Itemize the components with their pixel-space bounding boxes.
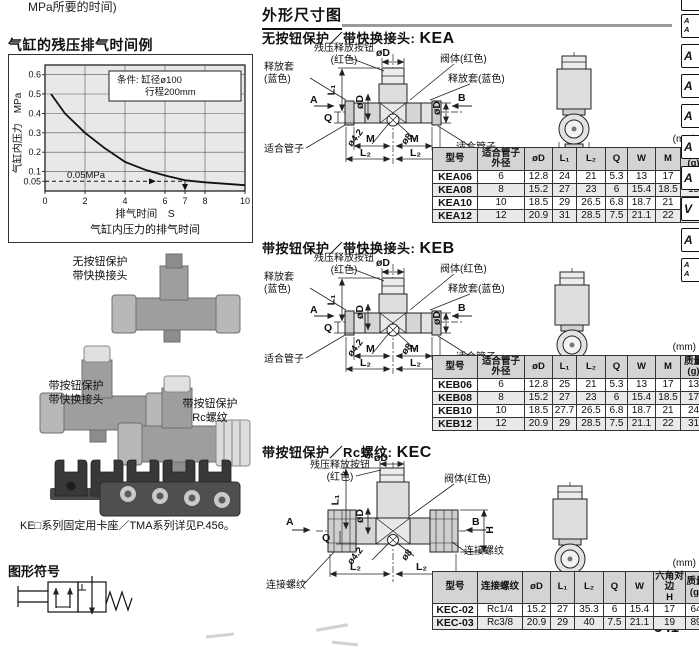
- table-row: KEB08815.22723615.418.517: [433, 392, 699, 405]
- x-axis-ticks: 0 2 4 6 7 8 10: [42, 196, 250, 206]
- value-cell: 31: [681, 418, 699, 431]
- page-top-note: MPa所要的时间): [28, 0, 117, 15]
- value-cell: Rc1/4: [478, 604, 523, 617]
- svg-text:2: 2: [82, 196, 87, 206]
- svg-text:7: 7: [182, 196, 187, 206]
- model-cell: KEB06: [433, 379, 478, 392]
- dim-label-l2-left: L₂: [360, 357, 371, 369]
- column-header: øD: [525, 148, 553, 171]
- dim-label-od-top: øD: [376, 47, 390, 59]
- value-cell: 28.5: [577, 210, 606, 223]
- value-cell: 29: [553, 197, 577, 210]
- dim-label-l2-left: L₂: [350, 561, 361, 573]
- condition-line2: 行程200mm: [145, 86, 196, 98]
- value-cell: 12.8: [525, 379, 553, 392]
- table-header-row: 型号适合管子 外径øDL₁L₂QWM质量 (g): [433, 148, 699, 171]
- label-release-sleeve-left: 释放套 (蓝色): [264, 62, 294, 86]
- value-cell: 13: [628, 171, 656, 184]
- dim-label-od-right: øD: [431, 311, 443, 325]
- dim-label-b: B: [472, 516, 480, 528]
- table-row: KEA06612.824215.3131710: [433, 171, 699, 184]
- photo-label-kea: 无按钮保护 带快换接头: [50, 256, 150, 284]
- chart-canvas: 条件: 缸径ø100 行程200mm 0.05MPa 0.6 0.5 0.4 0…: [9, 55, 252, 242]
- column-header: 适合管子 外径: [478, 356, 525, 379]
- column-header: 型号: [433, 148, 478, 171]
- y-axis-ticks: 0.6 0.5 0.4 0.3 0.2 0.1 0.05: [23, 70, 41, 187]
- value-cell: 31: [553, 210, 577, 223]
- model-cell: KEA08: [433, 184, 478, 197]
- value-cell: 18.7: [628, 197, 656, 210]
- index-tab: V: [681, 197, 699, 221]
- value-cell: 7.5: [606, 418, 628, 431]
- keb-dimensions-table: 型号适合管子 外径øDL₁L₂QWM质量 (g)KEB06612.825215.…: [432, 355, 699, 431]
- dim-label-a: A: [310, 94, 318, 106]
- svg-text:4: 4: [122, 196, 127, 206]
- y-axis-label: 气缸内压力 MPa: [11, 92, 24, 173]
- model-cell: KEB10: [433, 405, 478, 418]
- column-header: 质量 (g): [686, 572, 699, 604]
- dim-label-od-vertical: øD: [354, 509, 366, 523]
- chart-title: 气缸的残压排气时间例: [8, 35, 153, 55]
- dim-label-a: A: [286, 516, 294, 528]
- actuator-symbol: [18, 586, 48, 607]
- label-tube-left: 适合管子: [264, 144, 304, 156]
- dim-label-od-top: øD: [376, 257, 390, 269]
- value-cell: 64: [686, 604, 699, 617]
- value-cell: 20.9: [523, 617, 551, 630]
- label-tube-left: 适合管子: [264, 354, 304, 366]
- value-cell: 6: [606, 184, 628, 197]
- column-header: øD: [525, 356, 553, 379]
- column-header: L₂: [577, 148, 606, 171]
- index-tab: A: [681, 74, 699, 98]
- dim-label-q: Q: [322, 532, 330, 544]
- value-cell: 20.9: [525, 418, 553, 431]
- value-cell: 19: [654, 617, 686, 630]
- dim-label-od-vertical: øD: [354, 305, 366, 319]
- label-valve-body: 阀体(红色): [444, 474, 491, 486]
- value-cell: 24: [553, 171, 577, 184]
- index-tab: A: [681, 166, 699, 190]
- value-cell: 21: [656, 197, 681, 210]
- photo-label-keb: 带按钮保护 带快换接头: [28, 380, 124, 408]
- column-header: 连接螺纹: [478, 572, 523, 604]
- value-cell: 28.5: [577, 418, 606, 431]
- value-cell: 23: [577, 184, 606, 197]
- table-row: KEB06612.825215.3131713: [433, 379, 699, 392]
- value-cell: 17: [656, 171, 681, 184]
- dim-label-od-vertical: øD: [354, 95, 366, 109]
- label-release-sleeve-right: 释放套(蓝色): [448, 74, 505, 86]
- value-cell: 12: [478, 418, 525, 431]
- table-header-row: 型号适合管子 外径øDL₁L₂QWM质量 (g): [433, 356, 699, 379]
- column-header: 六角对边 H: [654, 572, 686, 604]
- value-cell: 40: [575, 617, 604, 630]
- label-thread-right: 连接螺纹: [464, 546, 504, 558]
- value-cell: 10: [478, 405, 525, 418]
- value-cell: 6: [604, 604, 626, 617]
- value-cell: 21: [577, 171, 606, 184]
- value-cell: 22: [656, 210, 681, 223]
- kea-dimensions-table: 型号适合管子 外径øDL₁L₂QWM质量 (g)KEA06612.824215.…: [432, 147, 699, 223]
- value-cell: 21.1: [628, 418, 656, 431]
- value-cell: 15.2: [523, 604, 551, 617]
- value-cell: 89: [686, 617, 699, 630]
- dim-label-m-left: M: [366, 343, 375, 355]
- column-header: L₁: [553, 356, 577, 379]
- svg-text:0.5: 0.5: [28, 89, 41, 99]
- value-cell: 6.8: [606, 197, 628, 210]
- value-cell: 21.1: [628, 210, 656, 223]
- value-cell: 24: [681, 405, 699, 418]
- value-cell: 27: [553, 184, 577, 197]
- value-cell: 15.4: [628, 184, 656, 197]
- model-cell: KEB08: [433, 392, 478, 405]
- svg-text:6: 6: [162, 196, 167, 206]
- product-photos: 无按钮保护 带快换接头 带按钮保护 带快换接头 带按钮保护 Rc螺纹 KE□系列…: [0, 248, 258, 560]
- value-cell: 18.5: [525, 405, 553, 418]
- value-cell: 27: [553, 392, 577, 405]
- column-header: M: [656, 148, 681, 171]
- value-cell: 18.5: [525, 197, 553, 210]
- kec-dimensions-table: 型号连接螺纹øDL₁L₂QW六角对边 H质量 (g)KEC-02Rc1/415.…: [432, 571, 699, 630]
- dim-label-h: H: [484, 526, 496, 534]
- pneumatic-symbol: [14, 574, 174, 644]
- svg-text:8: 8: [202, 196, 207, 206]
- svg-text:0.2: 0.2: [28, 147, 41, 157]
- threshold-annotation: 0.05MPa: [67, 170, 106, 181]
- dim-label-l1: L₁: [329, 495, 341, 506]
- column-header: Q: [606, 148, 628, 171]
- model-cell: KEA06: [433, 171, 478, 184]
- dim-label-q: Q: [324, 112, 332, 124]
- dim-label-b: B: [458, 302, 466, 314]
- label-release-button: 残压释放按钮 (红色): [294, 460, 386, 484]
- dim-label-b: B: [458, 92, 466, 104]
- dim-label-od-right: øD: [431, 101, 443, 115]
- value-cell: 7.5: [606, 210, 628, 223]
- value-cell: 17: [654, 604, 686, 617]
- chart-caption: 气缸内压力的排气时间: [90, 222, 200, 236]
- index-tab: A: [681, 104, 699, 128]
- column-header: M: [656, 356, 681, 379]
- value-cell: 15.2: [525, 184, 553, 197]
- photo-caption: KE□系列固定用卡座／TMA系列详见P.456。: [20, 520, 256, 533]
- column-header: 质量 (g): [681, 356, 699, 379]
- value-cell: 20.9: [525, 210, 553, 223]
- value-cell: 8: [478, 184, 525, 197]
- x-axis-label: 排气时间 S: [115, 207, 175, 220]
- model-cell: KEA12: [433, 210, 478, 223]
- model-cell: KEC-03: [433, 617, 478, 630]
- value-cell: 10: [478, 197, 525, 210]
- svg-text:0.05: 0.05: [23, 177, 41, 187]
- value-cell: 5.3: [606, 171, 628, 184]
- column-header: L₁: [551, 572, 575, 604]
- table-row: KEA08815.22723615.418.515: [433, 184, 699, 197]
- dim-label-a: A: [310, 304, 318, 316]
- value-cell: 22: [656, 418, 681, 431]
- svg-text:0.3: 0.3: [28, 128, 41, 138]
- value-cell: 26.5: [577, 197, 606, 210]
- table-row: KEA101018.52926.56.818.72122.5: [433, 197, 699, 210]
- index-tab: [681, 0, 699, 11]
- column-header: 型号: [433, 572, 478, 604]
- value-cell: 29: [551, 617, 575, 630]
- column-header: W: [628, 148, 656, 171]
- table-row: KEB101018.527.726.56.818.72124: [433, 405, 699, 418]
- value-cell: 27: [551, 604, 575, 617]
- spring-symbol: [106, 592, 132, 610]
- dim-label-m-right: M: [410, 343, 419, 355]
- value-cell: 12.8: [525, 171, 553, 184]
- index-tab: A A: [681, 258, 699, 282]
- outline-heading: 外形尺寸图: [262, 4, 342, 30]
- value-cell: 35.3: [575, 604, 604, 617]
- label-release-sleeve-left: 释放套 (蓝色): [264, 272, 294, 296]
- value-cell: 8: [478, 392, 525, 405]
- value-cell: 18.5: [656, 392, 681, 405]
- svg-text:0.4: 0.4: [28, 109, 41, 119]
- dim-label-l2-right: L₂: [410, 147, 421, 159]
- column-header: øD: [523, 572, 551, 604]
- dim-label-l1: L₁: [325, 295, 337, 306]
- index-tab: A: [681, 228, 699, 252]
- catalog-page: MPa所要的时间) 气缸的残压排气时间例 条件: 缸径ø100 行程200mm …: [0, 0, 699, 656]
- table-row: KEC-02Rc1/415.22735.3615.41764: [433, 604, 699, 617]
- value-cell: 15.4: [628, 392, 656, 405]
- value-cell: 23: [577, 392, 606, 405]
- value-cell: 26.5: [577, 405, 606, 418]
- value-cell: Rc3/8: [478, 617, 523, 630]
- unit-note-kec: (mm): [432, 558, 696, 569]
- value-cell: 7.5: [604, 617, 626, 630]
- label-valve-body: 阀体(红色): [440, 54, 487, 66]
- value-cell: 18.5: [656, 184, 681, 197]
- dim-label-l2-right: L₂: [416, 561, 427, 573]
- value-cell: 15.2: [525, 392, 553, 405]
- table-row: KEB121220.92928.57.521.12231: [433, 418, 699, 431]
- index-tab: A: [681, 44, 699, 68]
- value-cell: 5.3: [606, 379, 628, 392]
- label-valve-body: 阀体(红色): [440, 264, 487, 276]
- model-cell: KEA10: [433, 197, 478, 210]
- svg-text:0.6: 0.6: [28, 70, 41, 80]
- value-cell: 6: [478, 379, 525, 392]
- svg-text:0.1: 0.1: [28, 167, 41, 177]
- value-cell: 18.7: [628, 405, 656, 418]
- svg-text:10: 10: [240, 196, 250, 206]
- value-cell: 15.4: [626, 604, 654, 617]
- value-cell: 17: [681, 392, 699, 405]
- value-cell: 12: [478, 210, 525, 223]
- value-cell: 25: [553, 379, 577, 392]
- value-cell: 13: [681, 379, 699, 392]
- exhaust-time-chart: 条件: 缸径ø100 行程200mm 0.05MPa 0.6 0.5 0.4 0…: [8, 54, 253, 243]
- value-cell: 6: [606, 392, 628, 405]
- dim-label-m-right: M: [410, 133, 419, 145]
- model-cell: KEB12: [433, 418, 478, 431]
- value-cell: 21: [577, 379, 606, 392]
- value-cell: 29: [553, 418, 577, 431]
- dim-label-l2-right: L₂: [410, 357, 421, 369]
- index-tab: A: [681, 135, 699, 159]
- value-cell: 6.8: [606, 405, 628, 418]
- dim-label-od-top: øD: [374, 452, 388, 464]
- photo-label-kec: 带按钮保护 Rc螺纹: [162, 398, 258, 426]
- dim-label-m-left: M: [366, 133, 375, 145]
- table-row: KEC-03Rc3/820.929407.521.11989: [433, 617, 699, 630]
- column-header: W: [626, 572, 654, 604]
- dim-label-q: Q: [324, 322, 332, 334]
- value-cell: 13: [628, 379, 656, 392]
- label-thread-left: 连接螺纹: [266, 580, 306, 592]
- index-tab: A A: [681, 14, 699, 38]
- value-cell: 21: [656, 405, 681, 418]
- dim-label-l2-left: L₂: [360, 147, 371, 159]
- column-header: Q: [606, 356, 628, 379]
- dim-label-l1: L₁: [325, 85, 337, 96]
- column-header: 适合管子 外径: [478, 148, 525, 171]
- value-cell: 27.7: [553, 405, 577, 418]
- value-cell: 21.1: [626, 617, 654, 630]
- table-header-row: 型号连接螺纹øDL₁L₂QW六角对边 H质量 (g): [433, 572, 699, 604]
- column-header: L₂: [577, 356, 606, 379]
- column-header: 型号: [433, 356, 478, 379]
- manifold-photo: [100, 482, 240, 516]
- column-header: Q: [604, 572, 626, 604]
- value-cell: 6: [478, 171, 525, 184]
- value-cell: 17: [656, 379, 681, 392]
- condition-line1: 条件: 缸径ø100: [117, 74, 182, 86]
- column-header: W: [628, 356, 656, 379]
- column-header: L₂: [575, 572, 604, 604]
- table-row: KEA121220.93128.57.521.12229.5: [433, 210, 699, 223]
- model-cell: KEC-02: [433, 604, 478, 617]
- column-header: L₁: [553, 148, 577, 171]
- svg-text:0: 0: [42, 196, 47, 206]
- label-release-sleeve-right: 释放套(蓝色): [448, 284, 505, 296]
